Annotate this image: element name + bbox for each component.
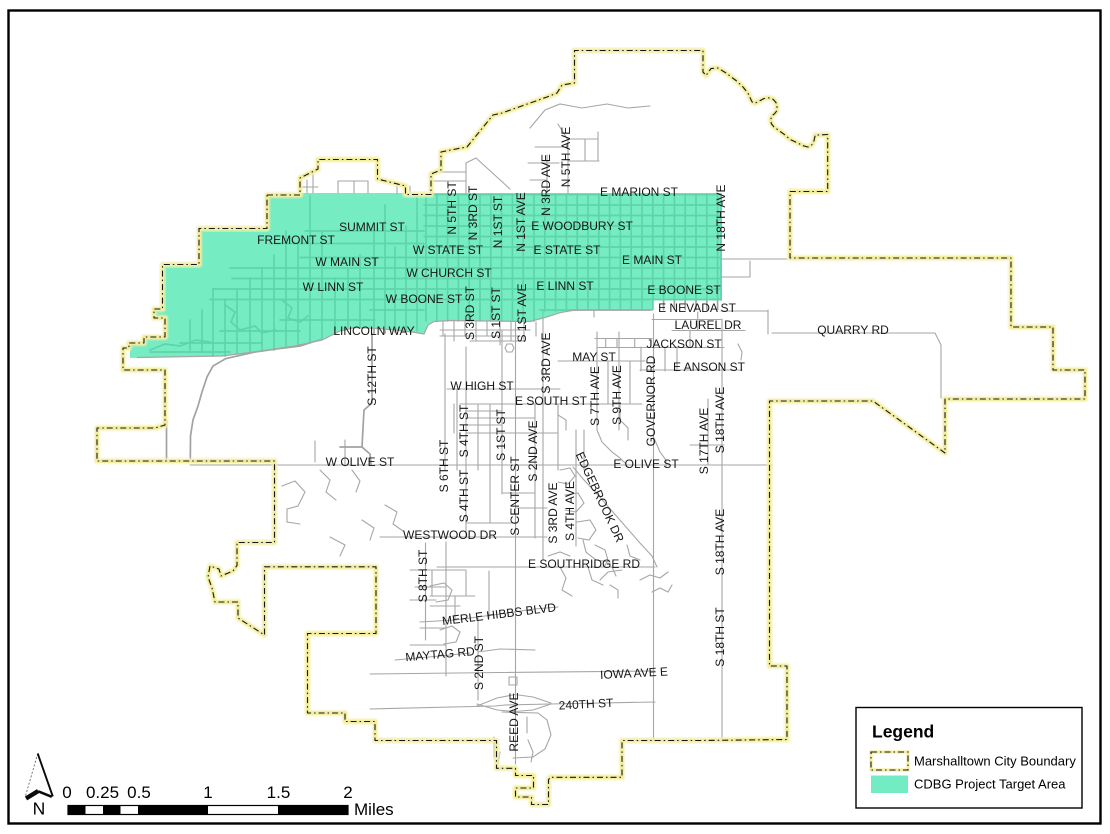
svg-text:E WOODBURY ST: E WOODBURY ST <box>531 219 633 233</box>
svg-text:MAY ST: MAY ST <box>572 350 616 364</box>
svg-text:QUARRY RD: QUARRY RD <box>817 323 889 337</box>
svg-text:E SOUTHRIDGE RD: E SOUTHRIDGE RD <box>528 557 640 571</box>
svg-text:LAUREL DR: LAUREL DR <box>675 318 742 332</box>
svg-text:N 5TH AVE: N 5TH AVE <box>559 127 573 187</box>
svg-text:WESTWOOD DR: WESTWOOD DR <box>403 528 497 542</box>
svg-text:S CENTER ST: S CENTER ST <box>508 456 522 536</box>
svg-text:JACKSON ST: JACKSON ST <box>646 337 722 351</box>
svg-text:N 18TH AVE: N 18TH AVE <box>714 184 728 251</box>
svg-text:1.5: 1.5 <box>267 783 291 802</box>
svg-text:E NEVADA ST: E NEVADA ST <box>658 301 736 315</box>
svg-text:W LINN ST: W LINN ST <box>303 280 364 294</box>
svg-text:E LINN ST: E LINN ST <box>536 279 594 293</box>
svg-text:LINCOLN WAY: LINCOLN WAY <box>333 324 414 338</box>
svg-text:S 2ND ST: S 2ND ST <box>472 635 486 690</box>
svg-text:0.5: 0.5 <box>127 783 151 802</box>
svg-text:S 6TH ST: S 6TH ST <box>437 439 451 492</box>
svg-text:1: 1 <box>203 783 212 802</box>
svg-text:W OLIVE ST: W OLIVE ST <box>326 455 395 469</box>
svg-text:N 3RD AVE: N 3RD AVE <box>539 154 553 216</box>
svg-text:S 7TH AVE: S 7TH AVE <box>588 366 602 426</box>
svg-text:CDBG Project Target Area: CDBG Project Target Area <box>914 777 1066 792</box>
svg-text:S 3RD ST: S 3RD ST <box>463 285 477 340</box>
svg-text:240TH ST: 240TH ST <box>558 696 614 713</box>
svg-text:S 3RD AVE: S 3RD AVE <box>546 482 560 543</box>
svg-text:W CHURCH ST: W CHURCH ST <box>406 266 492 280</box>
svg-text:S 8TH ST: S 8TH ST <box>416 549 430 602</box>
svg-text:REED AVE: REED AVE <box>507 692 521 751</box>
svg-text:S 4TH AVE: S 4TH AVE <box>563 481 577 541</box>
svg-text:S 4TH ST: S 4TH ST <box>457 469 471 522</box>
svg-text:N 3RD ST: N 3RD ST <box>466 185 480 240</box>
svg-text:S 3RD AVE: S 3RD AVE <box>539 332 553 393</box>
svg-text:N 5TH ST: N 5TH ST <box>445 181 459 235</box>
svg-text:GOVERNOR RD: GOVERNOR RD <box>644 355 658 446</box>
svg-text:Marshalltown City Boundary: Marshalltown City Boundary <box>914 754 1076 769</box>
svg-text:N: N <box>33 799 46 819</box>
svg-text:N 1ST ST: N 1ST ST <box>491 195 505 248</box>
svg-text:E STATE ST: E STATE ST <box>534 243 602 257</box>
svg-text:S 1ST ST: S 1ST ST <box>494 408 508 460</box>
svg-text:S 1ST ST: S 1ST ST <box>489 286 503 338</box>
svg-text:E OLIVE ST: E OLIVE ST <box>613 457 679 471</box>
svg-text:W BOONE ST: W BOONE ST <box>386 292 463 306</box>
svg-text:Legend: Legend <box>872 722 934 742</box>
svg-text:W STATE ST: W STATE ST <box>413 243 484 257</box>
svg-text:0: 0 <box>62 783 71 802</box>
svg-text:FREMONT ST: FREMONT ST <box>257 233 335 247</box>
svg-text:E MAIN ST: E MAIN ST <box>622 253 683 267</box>
svg-text:Miles: Miles <box>354 800 394 819</box>
svg-text:N 1ST AVE: N 1ST AVE <box>514 192 528 252</box>
svg-text:S 12TH ST: S 12TH ST <box>365 346 379 406</box>
svg-text:S 18TH ST: S 18TH ST <box>713 607 727 667</box>
svg-text:E MARION ST: E MARION ST <box>600 185 679 199</box>
svg-text:S 17TH AVE: S 17TH AVE <box>697 408 711 474</box>
svg-text:S 18TH AVE: S 18TH AVE <box>713 509 727 575</box>
svg-text:2: 2 <box>343 783 352 802</box>
svg-text:W MAIN ST: W MAIN ST <box>315 255 379 269</box>
svg-text:E ANSON ST: E ANSON ST <box>673 360 746 374</box>
svg-text:E SOUTH ST: E SOUTH ST <box>515 394 588 408</box>
svg-text:S 1ST AVE: S 1ST AVE <box>515 284 529 343</box>
svg-text:S 4TH ST: S 4TH ST <box>457 404 471 457</box>
svg-text:0.25: 0.25 <box>86 783 119 802</box>
svg-text:SUMMIT ST: SUMMIT ST <box>339 220 405 234</box>
svg-text:S 18TH AVE: S 18TH AVE <box>713 387 727 453</box>
svg-text:S 9TH AVE: S 9TH AVE <box>610 365 624 425</box>
svg-text:S 2ND AVE: S 2ND AVE <box>526 420 540 481</box>
svg-text:W HIGH ST: W HIGH ST <box>450 379 514 393</box>
svg-text:E BOONE ST: E BOONE ST <box>647 283 721 297</box>
